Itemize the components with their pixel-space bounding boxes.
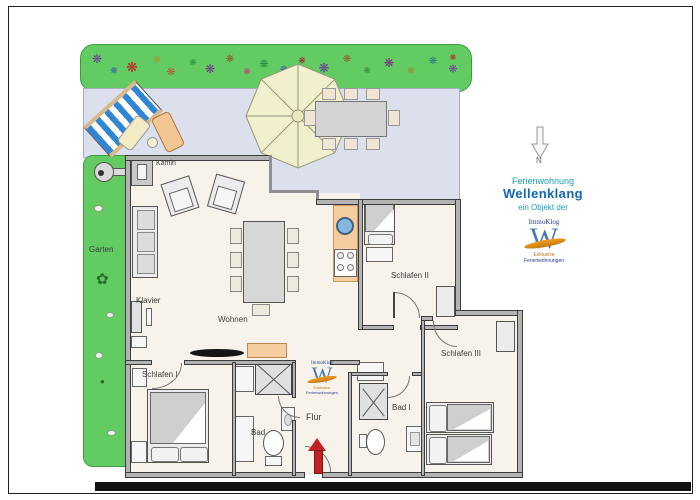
flower-icon: ❋ (92, 53, 102, 65)
logo-tagline2: Ferienwohnungen (298, 390, 346, 395)
bush-icon: ✿ (96, 272, 109, 287)
wall (125, 155, 272, 161)
room-label-schlafen2: Schlafen II (391, 271, 429, 280)
flower-icon: ❋ (189, 59, 197, 68)
wall (125, 155, 131, 478)
chimney-dot (98, 170, 104, 176)
wall (292, 420, 296, 476)
flower-icon: ❋ (448, 65, 457, 76)
wardrobe (496, 321, 515, 352)
outdoor-chair (322, 138, 336, 150)
wall (269, 155, 272, 193)
wall (455, 199, 461, 316)
bed-single (426, 402, 494, 433)
title-block: Ferienwohnung Wellenklang ein Objekt der (488, 176, 598, 212)
garden-label: Garten (89, 245, 113, 254)
sideboard (131, 336, 147, 348)
outdoor-chair (304, 110, 316, 126)
side-table (147, 137, 158, 148)
title-objekt: ein Objekt der (488, 203, 598, 212)
stone-icon (106, 312, 114, 318)
wardrobe (131, 441, 147, 463)
flower-icon: ❋ (226, 55, 234, 65)
dining-chair (252, 304, 270, 316)
stone-icon (95, 352, 103, 359)
floor-plan-page: ❋❋❋❋❋❋❋❋❋❋❋❋❋❋❋❋❋❋❋❋ Garten ✿ ● (0, 0, 700, 500)
entrance-arrow-stem (314, 450, 323, 474)
room-label-schlafen3: Schlafen III (441, 349, 481, 358)
flower-icon: ❋ (205, 63, 215, 75)
bush-icon: ● (100, 378, 105, 386)
stone-icon (94, 205, 103, 212)
wall (125, 472, 305, 478)
wall (232, 362, 236, 476)
burner (347, 264, 354, 271)
dining-chair (230, 228, 242, 244)
north-arrow-icon (531, 126, 549, 160)
dining-table (243, 221, 285, 303)
wall (517, 310, 523, 478)
toilet (366, 429, 385, 455)
dining-chair (287, 252, 299, 268)
sofa (132, 206, 158, 278)
kitchen-sink (336, 217, 354, 235)
wall (269, 190, 319, 193)
dining-chair (287, 228, 299, 244)
door-leaf (393, 292, 395, 318)
wardrobe (436, 286, 455, 317)
wall (358, 199, 363, 330)
outdoor-chair (322, 88, 336, 100)
flower-icon: ❋ (110, 67, 118, 76)
room-label-schlafen1: Schlafen I (142, 370, 178, 379)
toilet (263, 430, 284, 456)
dining-chair (230, 276, 242, 292)
immoklog-logo-watermark: ImmoKlog W Exklusive Ferienwohnungen (298, 361, 346, 395)
flower-icon: ❋ (429, 57, 437, 67)
tv (190, 349, 244, 357)
flower-icon: ❋ (384, 57, 394, 69)
outdoor-chair (366, 138, 380, 150)
title-wellenklang: Wellenklang (488, 186, 598, 201)
outdoor-chair (344, 138, 358, 150)
dining-chair (230, 252, 242, 268)
dining-chair (287, 276, 299, 292)
logo-tagline2: Ferienwohnungen (512, 258, 576, 264)
wall (348, 372, 388, 376)
outdoor-chair (388, 110, 400, 126)
immoklog-logo: ImmoKlog W Exklusive Ferienwohnungen (512, 218, 576, 264)
toilet-tank (265, 456, 282, 466)
bed-single (426, 434, 492, 465)
compass-n-label: N (536, 156, 542, 165)
bath-cabinet (234, 416, 254, 462)
outdoor-chair (366, 88, 380, 100)
room-label-wohnen: Wohnen (218, 315, 248, 324)
room-label-flur: Flur (306, 412, 322, 422)
bed-double (147, 389, 209, 463)
room-label-kamin: Kamin (156, 160, 176, 167)
scale-bar (95, 482, 691, 491)
flower-icon: ❋ (363, 67, 371, 76)
chimney-icon (94, 162, 114, 182)
burner (337, 264, 344, 271)
flower-icon: ❋ (126, 60, 138, 74)
wall (421, 316, 433, 321)
wall (316, 199, 461, 205)
shower (255, 362, 292, 395)
piano (131, 301, 142, 333)
outdoor-chair (344, 88, 358, 100)
logo-w-monogram: W (512, 226, 576, 252)
flower-icon: ❋ (450, 54, 457, 62)
bed-single (364, 201, 395, 245)
wall (125, 360, 152, 365)
wall (455, 310, 523, 316)
bath-cabinet (234, 366, 254, 392)
room-label-klavier: Klavier (136, 296, 160, 305)
title-ferienwohnung: Ferienwohnung (488, 176, 598, 186)
fireplace (131, 158, 153, 186)
stone-icon (107, 430, 116, 436)
burner (347, 252, 354, 259)
room-label-bad: Bad (251, 428, 265, 437)
wall (348, 372, 352, 476)
outdoor-table (315, 101, 387, 137)
piano-bench (146, 308, 152, 326)
wall (292, 362, 296, 398)
wall (358, 325, 394, 330)
room-label-bad1: Bad I (392, 403, 411, 412)
flower-icon: ❋ (407, 67, 415, 76)
shower (359, 383, 388, 420)
dresser (247, 343, 287, 358)
wall (184, 360, 296, 365)
nightstand (366, 247, 393, 262)
wall (421, 316, 425, 476)
burner (337, 252, 344, 259)
flower-icon: ❋ (166, 68, 175, 79)
flower-icon: ❋ (153, 56, 161, 66)
